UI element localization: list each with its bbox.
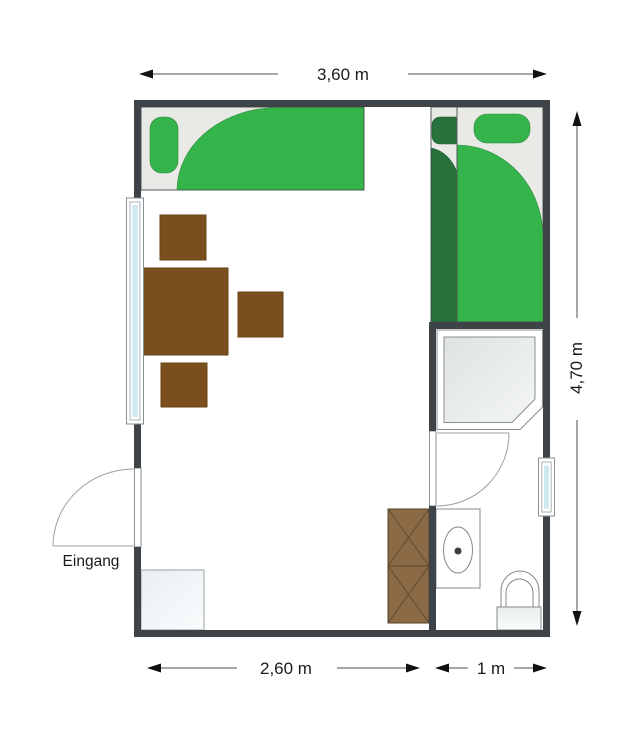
dimension-label-bottom-main: 2,60 m xyxy=(260,659,312,678)
bed-pillow xyxy=(432,117,457,144)
entrance-label: Eingang xyxy=(63,553,120,570)
shower-tray xyxy=(444,337,535,423)
wall-right-upper xyxy=(543,100,550,458)
wall-bed-niche xyxy=(429,322,550,329)
arrow-left-icon xyxy=(139,70,153,79)
bed-horizontal xyxy=(141,107,364,190)
dimension-bottom-bath: 1 m xyxy=(435,659,547,678)
wardrobe xyxy=(388,509,429,623)
dimension-label-bottom-bath: 1 m xyxy=(477,659,505,678)
bed-pillow xyxy=(150,117,178,173)
door-swing-arc xyxy=(437,433,509,506)
wall-left-lower xyxy=(134,547,141,637)
entrance-door xyxy=(53,468,141,547)
wall-left-middle xyxy=(134,424,141,468)
arrow-right-icon xyxy=(533,70,547,79)
washbasin xyxy=(436,509,480,588)
table xyxy=(141,268,228,355)
wall-bottom xyxy=(134,630,550,637)
floor-plan-svg: 3,60 m 4,70 m 2,60 m 1 m Eingang xyxy=(0,0,640,737)
bed-pillow xyxy=(474,114,530,143)
window-left xyxy=(127,198,144,424)
low-cabinet xyxy=(141,570,204,630)
toilet-seat xyxy=(506,579,533,607)
arrow-down-icon xyxy=(573,611,582,626)
dimension-bottom-main: 2,60 m xyxy=(147,659,420,678)
dimension-label-right: 4,70 m xyxy=(567,342,586,394)
toilet xyxy=(497,571,541,630)
window-glass xyxy=(132,205,138,417)
wall-right-lower xyxy=(543,516,550,637)
shower xyxy=(437,330,543,430)
wall-partition-lower xyxy=(429,506,436,630)
wall-left-upper xyxy=(134,100,141,198)
floor-plan-canvas: 3,60 m 4,70 m 2,60 m 1 m Eingang xyxy=(0,0,640,737)
wall-top xyxy=(134,100,550,107)
dining-set xyxy=(141,215,283,407)
dimension-label-top: 3,60 m xyxy=(317,65,369,84)
arrow-left-icon xyxy=(435,664,449,673)
wall-partition-upper xyxy=(429,329,436,431)
arrow-left-icon xyxy=(147,664,161,673)
dimension-top: 3,60 m xyxy=(139,65,547,84)
bed-vertical-front xyxy=(457,107,543,322)
chair-bottom xyxy=(161,363,207,407)
drain xyxy=(455,548,462,555)
bathroom-door xyxy=(430,431,510,506)
window-right xyxy=(539,458,555,516)
dimension-right: 4,70 m xyxy=(567,111,586,626)
bed-vertical-back xyxy=(431,107,457,322)
arrow-right-icon xyxy=(533,664,547,673)
door-swing-arc xyxy=(53,469,134,546)
chair-top xyxy=(160,215,206,260)
chair-right xyxy=(238,292,283,337)
bed-blanket xyxy=(432,148,458,322)
arrow-right-icon xyxy=(406,664,420,673)
arrow-up-icon xyxy=(573,111,582,126)
toilet-tank xyxy=(497,607,541,630)
door-threshold xyxy=(135,468,142,547)
window-glass xyxy=(544,466,549,509)
door-threshold xyxy=(430,431,437,506)
